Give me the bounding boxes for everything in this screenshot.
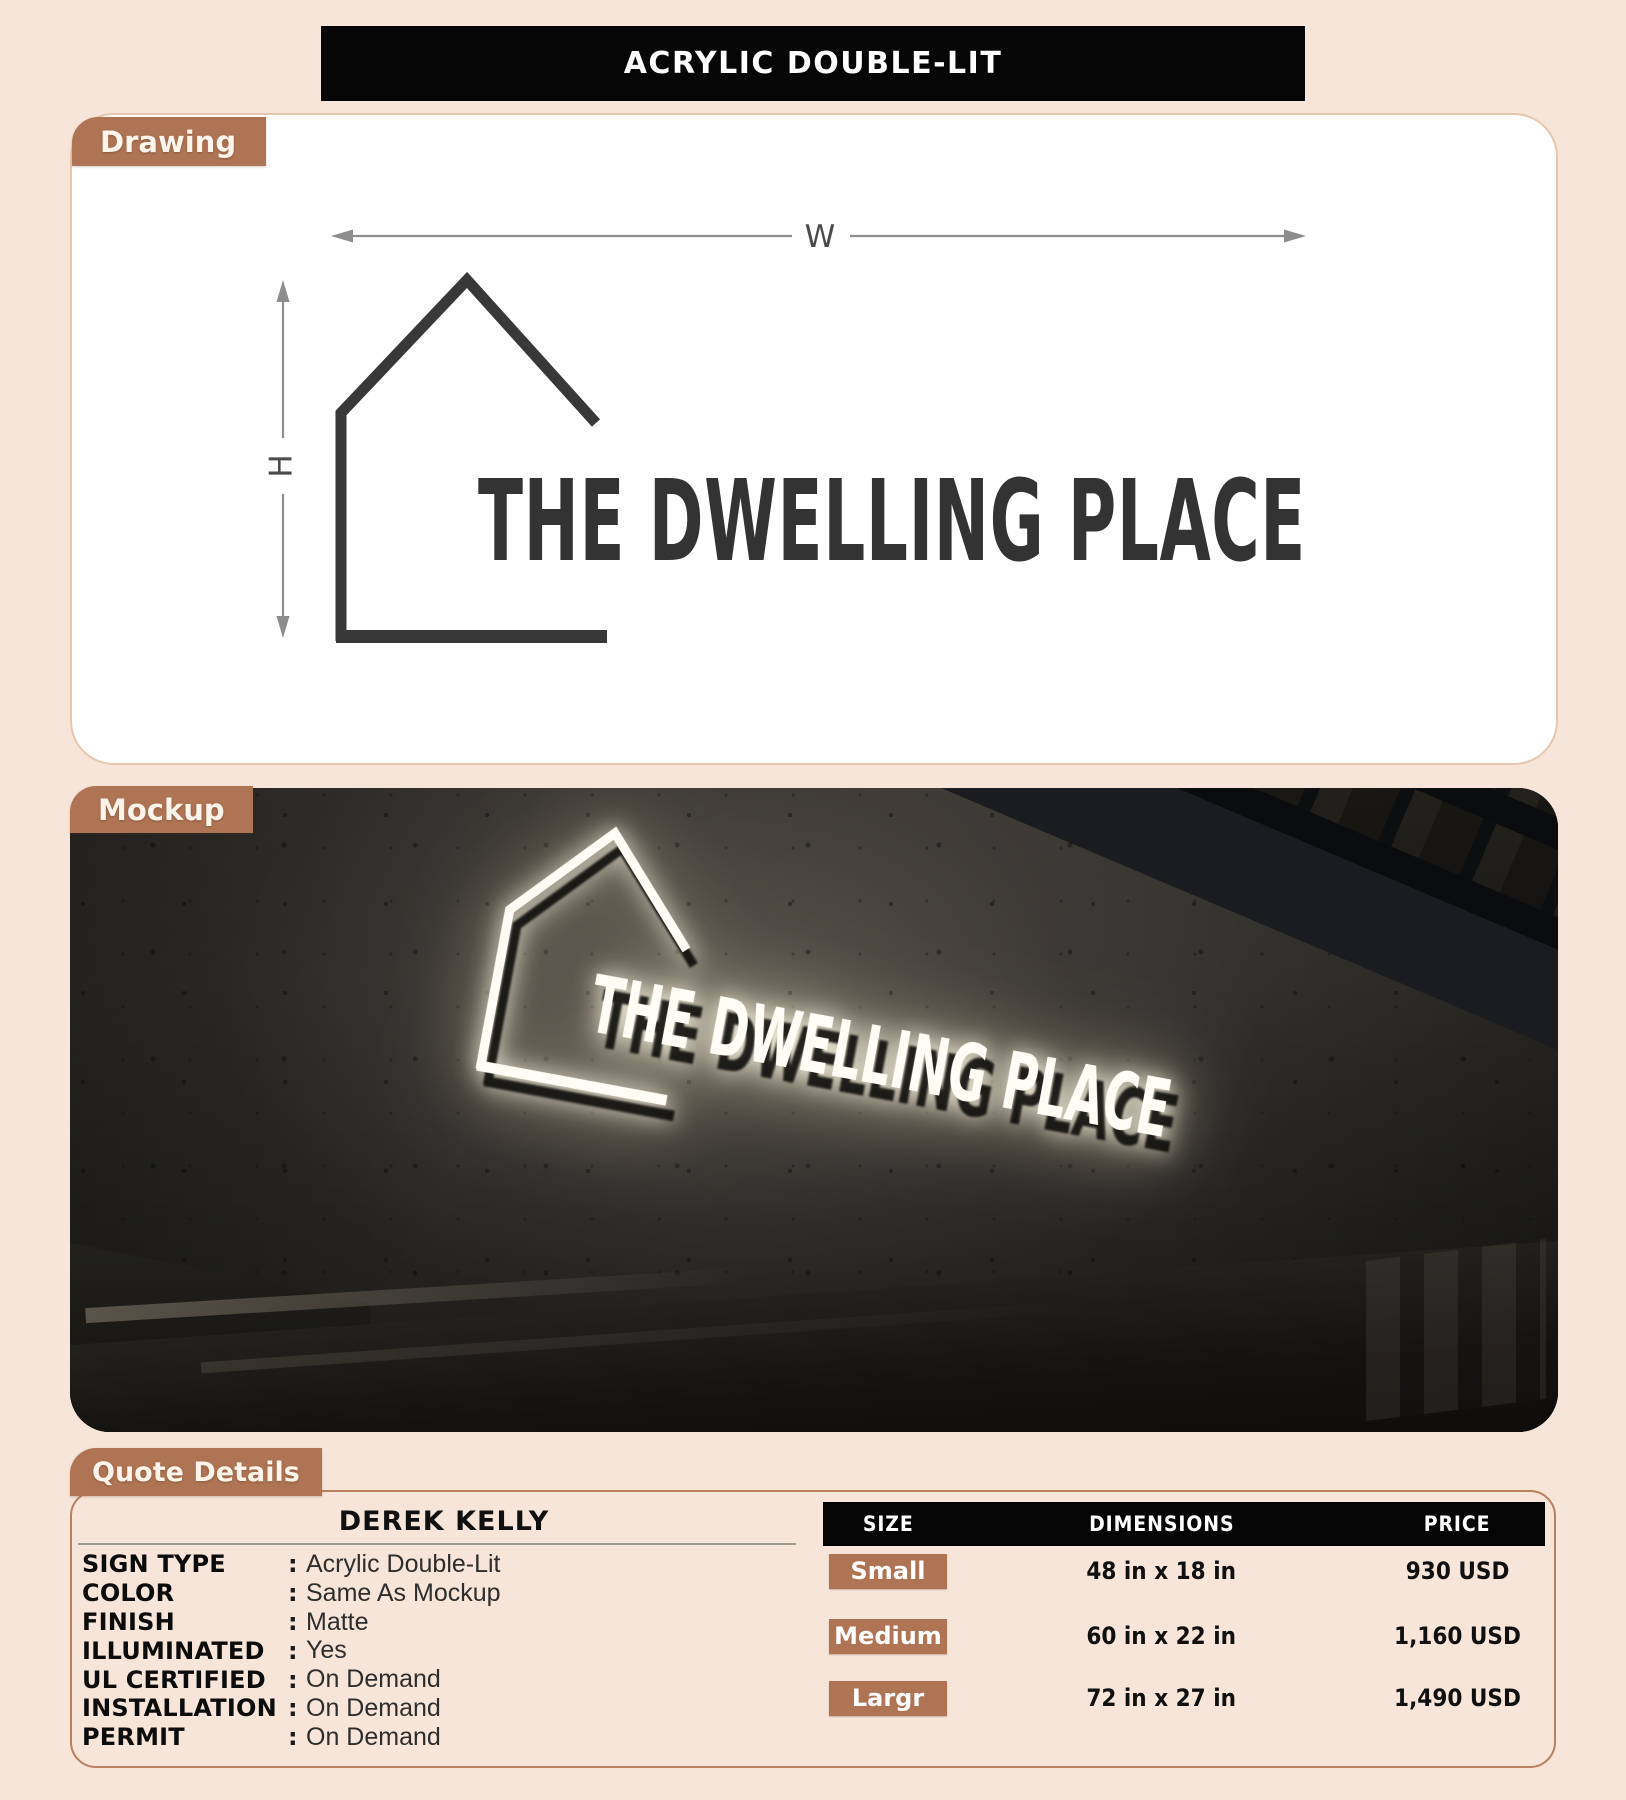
height-label: H: [264, 454, 300, 477]
price-cell: 1,160 USD: [1370, 1622, 1545, 1650]
spec-row-sign-type: SIGN TYPE : Acrylic Double-Lit: [82, 1550, 782, 1579]
table-row-large: Largr 72 in x 27 in 1,490 USD: [823, 1680, 1545, 1716]
spec-row-color: COLOR : Same As Mockup: [82, 1579, 782, 1608]
dimensions-cell: 48 in x 18 in: [953, 1557, 1370, 1585]
quote-section-label: Quote Details: [92, 1457, 300, 1488]
mockup-section-label: Mockup: [98, 793, 225, 827]
size-badge: Largr: [829, 1681, 947, 1716]
technical-drawing: W H THE DWELLING PLACE: [66, 110, 1562, 770]
header-dimensions: DIMENSIONS: [953, 1512, 1370, 1536]
dimensions-cell: 72 in x 27 in: [953, 1684, 1370, 1712]
pricing-table-header: SIZE DIMENSIONS PRICE: [823, 1502, 1545, 1546]
arrow-down-icon: [277, 616, 290, 638]
drawing-section-tab: Drawing: [72, 117, 266, 166]
window-reflection: [1366, 1239, 1546, 1421]
table-row-medium: Medium 60 in x 22 in 1,160 USD: [823, 1618, 1545, 1654]
customer-underline: [78, 1543, 796, 1545]
spec-list: SIGN TYPE : Acrylic Double-Lit COLOR : S…: [82, 1550, 782, 1752]
spec-value: Yes: [306, 1636, 347, 1665]
logo-wordmark: THE DWELLING PLACE: [478, 457, 1306, 587]
mockup-panel: THE DWELLING PLACE: [70, 788, 1558, 1432]
spec-value: Acrylic Double-Lit: [306, 1550, 501, 1579]
spec-label: SIGN TYPE: [82, 1550, 288, 1578]
width-label: W: [805, 219, 836, 255]
spec-colon: :: [288, 1723, 306, 1751]
spec-value: On Demand: [306, 1665, 441, 1694]
spec-colon: :: [288, 1637, 306, 1665]
spec-label: UL CERTIFIED: [82, 1666, 288, 1694]
drawing-section-label: Drawing: [100, 125, 236, 159]
spec-row-finish: FINISH : Matte: [82, 1608, 782, 1637]
signage-quote-sheet: ACRYLIC DOUBLE-LIT Drawing W H THE DWELL…: [0, 0, 1626, 1800]
pricing-table: SIZE DIMENSIONS PRICE Small 48 in x 18 i…: [823, 1502, 1545, 1716]
spec-colon: :: [288, 1666, 306, 1694]
spec-colon: :: [288, 1694, 306, 1722]
arrow-up-icon: [277, 280, 290, 302]
dimensions-cell: 60 in x 22 in: [953, 1622, 1370, 1650]
spec-colon: :: [288, 1550, 306, 1578]
spec-row-ul-certified: UL CERTIFIED : On Demand: [82, 1665, 782, 1694]
spec-label: PERMIT: [82, 1723, 288, 1751]
spec-row-permit: PERMIT : On Demand: [82, 1723, 782, 1752]
price-cell: 1,490 USD: [1370, 1684, 1545, 1712]
spec-colon: :: [288, 1608, 306, 1636]
customer-name: DEREK KELLY: [70, 1506, 818, 1537]
mockup-section-tab: Mockup: [70, 786, 253, 833]
spec-colon: :: [288, 1579, 306, 1607]
spec-row-installation: INSTALLATION : On Demand: [82, 1694, 782, 1723]
spec-label: COLOR: [82, 1579, 288, 1607]
price-cell: 930 USD: [1370, 1557, 1545, 1585]
size-badge: Medium: [829, 1619, 947, 1654]
size-badge: Small: [829, 1554, 947, 1589]
page-title: ACRYLIC DOUBLE-LIT: [624, 46, 1003, 81]
spec-value: Matte: [306, 1608, 369, 1637]
spec-label: FINISH: [82, 1608, 288, 1636]
header-size: SIZE: [823, 1512, 953, 1536]
quote-section-tab: Quote Details: [70, 1448, 322, 1496]
spec-value: On Demand: [306, 1694, 441, 1723]
spec-value: Same As Mockup: [306, 1579, 501, 1608]
header-price: PRICE: [1370, 1512, 1545, 1536]
arrow-left-icon: [331, 230, 353, 243]
spec-label: ILLUMINATED: [82, 1637, 288, 1665]
table-row-small: Small 48 in x 18 in 930 USD: [823, 1553, 1545, 1589]
arrow-right-icon: [1284, 230, 1306, 243]
spec-row-illuminated: ILLUMINATED : Yes: [82, 1636, 782, 1665]
spec-value: On Demand: [306, 1723, 441, 1752]
title-bar: ACRYLIC DOUBLE-LIT: [321, 26, 1305, 101]
spec-label: INSTALLATION: [82, 1694, 288, 1722]
